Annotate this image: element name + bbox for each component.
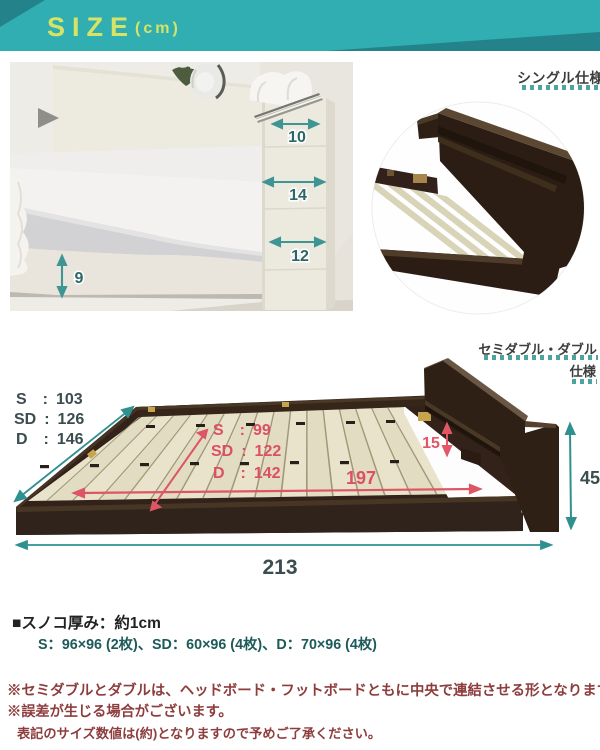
svg-text:D : 146: D : 146 (16, 431, 84, 448)
svg-text:D : 142: D : 142 (213, 465, 281, 482)
svg-text:12: 12 (291, 248, 309, 265)
svg-text:45: 45 (580, 468, 600, 488)
svg-text:S : 99: S : 99 (213, 422, 271, 439)
svg-text:SD : 122: SD : 122 (211, 443, 281, 460)
svg-text:15: 15 (422, 435, 440, 452)
svg-text:9: 9 (75, 270, 84, 287)
svg-text:SD : 126: SD : 126 (14, 411, 84, 428)
svg-text:S : 103: S : 103 (16, 391, 83, 408)
svg-text:213: 213 (262, 556, 297, 579)
svg-text:197: 197 (346, 468, 376, 488)
svg-text:14: 14 (289, 187, 307, 204)
svg-text:10: 10 (288, 129, 306, 146)
